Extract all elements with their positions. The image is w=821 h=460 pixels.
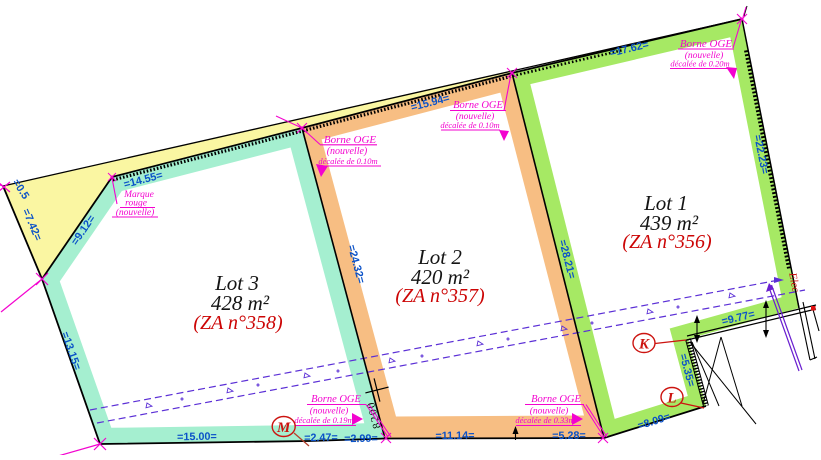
svg-text:=11.14=: =11.14= bbox=[435, 430, 474, 443]
svg-text:(ZA n°356): (ZA n°356) bbox=[622, 231, 712, 253]
svg-text:K: K bbox=[638, 337, 650, 353]
svg-text:décalée de 0.10m: décalée de 0.10m bbox=[440, 120, 499, 130]
svg-text:Borne OGE: Borne OGE bbox=[680, 38, 733, 50]
svg-text:Borne OGE: Borne OGE bbox=[311, 394, 361, 405]
svg-text:décalée de 0.10m: décalée de 0.10m bbox=[318, 156, 377, 166]
svg-text:décalée de 0.19m: décalée de 0.19m bbox=[294, 415, 353, 425]
svg-text:Borne OGE: Borne OGE bbox=[531, 394, 581, 405]
svg-text:Borne OGE: Borne OGE bbox=[453, 100, 503, 111]
svg-text:décalée de 0.33m: décalée de 0.33m bbox=[515, 415, 574, 425]
svg-text:Borne OGE: Borne OGE bbox=[324, 134, 377, 146]
svg-text:décalée de 0.20m: décalée de 0.20m bbox=[670, 59, 729, 69]
svg-text:=5.28=: =5.28= bbox=[552, 430, 586, 443]
svg-text:=15.00=: =15.00= bbox=[177, 431, 217, 444]
svg-text:M: M bbox=[276, 420, 291, 436]
svg-text:=2.47=: =2.47= bbox=[304, 432, 338, 445]
svg-text:L: L bbox=[666, 391, 676, 407]
svg-text:=2.99=: =2.99= bbox=[344, 433, 378, 446]
svg-text:(ZA n°357): (ZA n°357) bbox=[395, 285, 485, 307]
svg-text:(ZA n°358): (ZA n°358) bbox=[193, 312, 283, 334]
svg-text:(nouvelle): (nouvelle) bbox=[116, 207, 155, 218]
